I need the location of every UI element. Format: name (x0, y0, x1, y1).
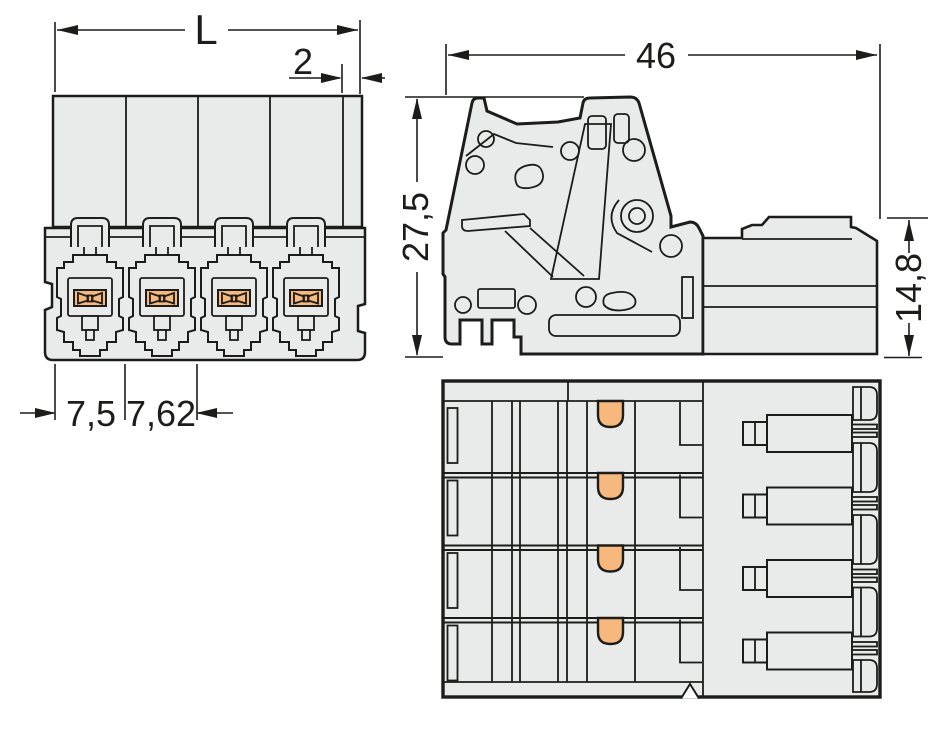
arrowhead (57, 25, 78, 35)
dimension-pitch: 7,5 7,62 (20, 364, 233, 434)
side-view (443, 97, 877, 354)
strain-notch (448, 481, 458, 536)
dim-label-7-62: 7,62 (126, 393, 196, 434)
push-button (598, 618, 623, 644)
connector-dimensional-drawing: L 2 7,5 7,62 (0, 0, 936, 730)
terminal-cell (201, 255, 267, 356)
dim-label-7-5: 7,5 (66, 393, 116, 434)
push-button (598, 401, 623, 427)
arrowhead (904, 220, 914, 241)
dimension-overall-length: L (55, 6, 360, 94)
dim-label-L: L (194, 6, 217, 53)
push-button (598, 473, 623, 499)
push-button (598, 546, 623, 572)
arrowhead (337, 25, 358, 35)
strain-notch (448, 408, 458, 463)
arrowhead (361, 73, 382, 83)
dimension-plug-height: 14,8 (884, 218, 929, 358)
strain-notch (448, 553, 458, 608)
terminal-cell (273, 255, 339, 356)
strain-notch (448, 626, 458, 681)
terminal-cell (129, 255, 195, 356)
housing-front (53, 96, 362, 227)
arrowhead (196, 408, 217, 418)
arrowhead (412, 335, 422, 356)
arrowhead (856, 50, 877, 60)
arrowhead (904, 335, 914, 356)
technical-drawing-canvas: L 2 7,5 7,62 (0, 0, 936, 730)
dimension-end-offset: 2 (289, 41, 385, 93)
castellation-strip (852, 387, 877, 692)
dim-label-27-5: 27,5 (395, 192, 436, 262)
dim-label-2: 2 (293, 41, 313, 82)
dim-label-14-8: 14,8 (888, 253, 929, 323)
front-view (45, 96, 365, 360)
arrowhead (412, 98, 422, 119)
arrowhead (321, 73, 342, 83)
top-view (443, 381, 880, 699)
arrowhead (448, 50, 469, 60)
dim-label-46: 46 (636, 35, 676, 76)
arrowhead (35, 408, 56, 418)
terminal-cell (57, 255, 123, 356)
